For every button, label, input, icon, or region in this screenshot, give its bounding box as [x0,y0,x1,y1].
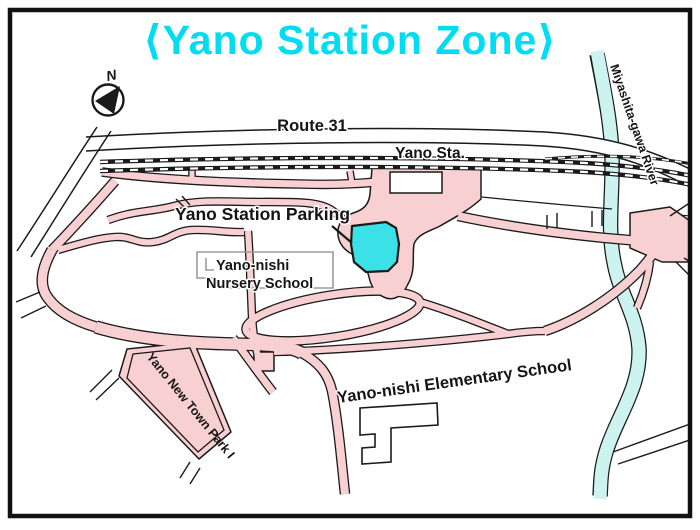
nursery-building-notch [206,258,214,270]
road-rail-link2 [350,171,352,183]
elementary-label: Yano-nishi Elementary School [336,356,573,407]
compass-n-label: N [105,66,119,84]
nursery-label-line1: Yano-nishi [216,258,289,274]
park-southwest-stub [90,370,119,400]
east-road-stub-b [592,210,602,227]
nursery-label-line2: Nursery School [206,276,313,292]
bottom-right-road [613,424,690,464]
road-ring-east [420,302,508,334]
park-south-stub [180,462,200,484]
north-arrow: N [93,66,124,115]
parking-area [351,222,399,272]
yano-station-zone-map: Route 31 Yano Sta. Yano Station Parking … [0,0,700,530]
road-wavy-south [58,230,244,250]
route-31-label: Route 31 [277,117,347,135]
map-canvas: Route 31 Yano Sta. Yano Station Parking … [0,0,700,530]
road-left-curve [42,250,96,327]
parking-label: Yano Station Parking [175,204,350,224]
station-building [390,172,442,193]
diagonal-road-edge-left [17,127,97,251]
yano-sta-label: Yano Sta. [395,145,465,162]
page-title: ⟨Yano Station Zone⟩ [143,17,557,63]
elementary-school-building [360,403,438,464]
